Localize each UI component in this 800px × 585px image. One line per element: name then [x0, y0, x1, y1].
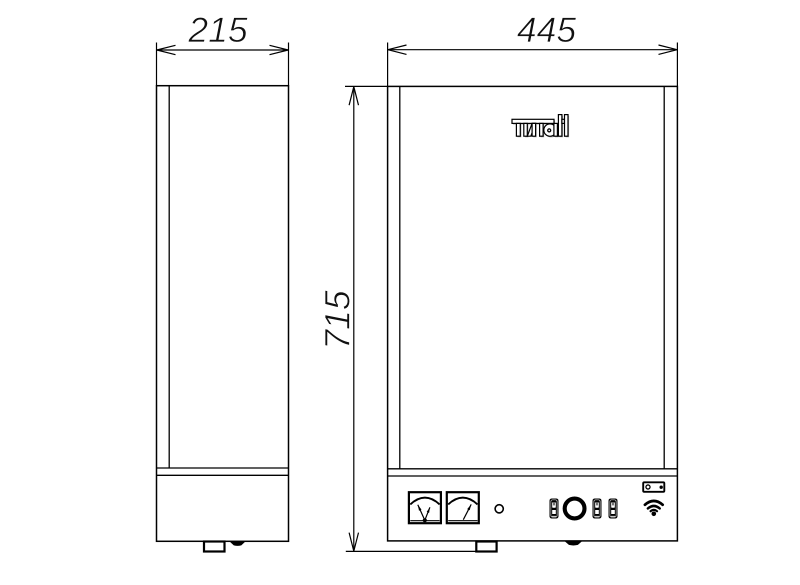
svg-text:215: 215: [187, 10, 247, 50]
svg-text:715: 715: [317, 290, 357, 349]
svg-text:445: 445: [517, 10, 576, 50]
